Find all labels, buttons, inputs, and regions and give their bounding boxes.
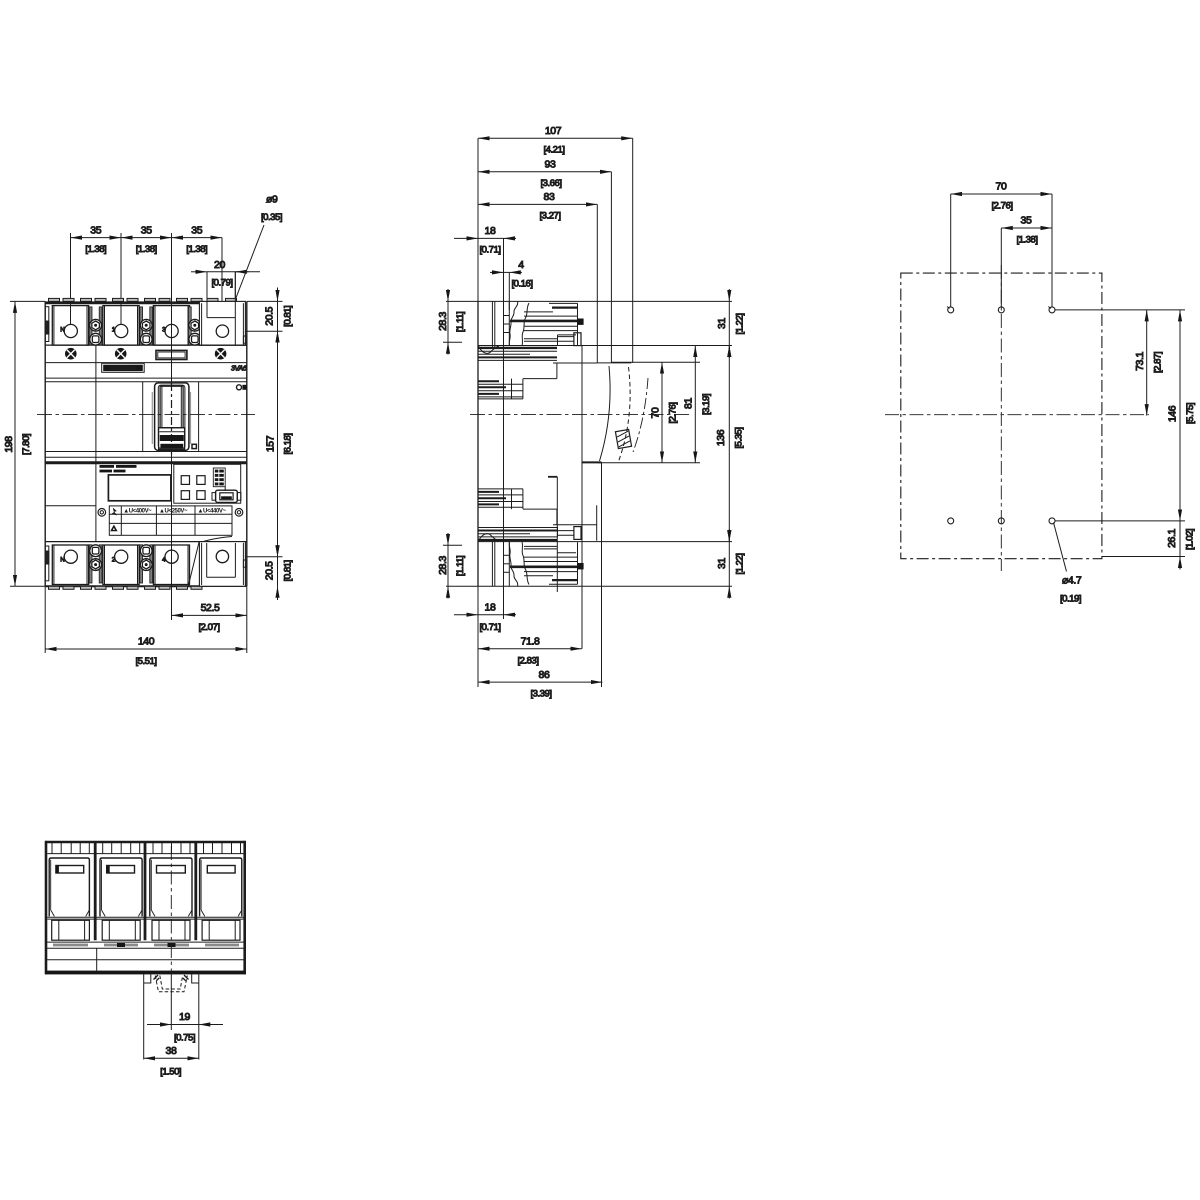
svg-text:38: 38 xyxy=(166,1045,177,1057)
svg-text:[1.11]: [1.11] xyxy=(455,312,466,332)
svg-text:70: 70 xyxy=(996,181,1007,193)
svg-text:⌀4.7: ⌀4.7 xyxy=(1062,575,1082,587)
svg-text:[5.75]: [5.75] xyxy=(1185,403,1196,424)
svg-text:31: 31 xyxy=(716,558,728,569)
svg-text:35: 35 xyxy=(90,225,101,237)
svg-text:[1.38]: [1.38] xyxy=(85,244,106,255)
svg-text:▲U<440V~: ▲U<440V~ xyxy=(198,509,227,515)
svg-text:[3.19]: [3.19] xyxy=(701,394,712,415)
svg-text:157: 157 xyxy=(264,435,276,452)
svg-text:[5.51]: [5.51] xyxy=(135,656,156,667)
svg-text:[2.07]: [2.07] xyxy=(198,622,219,633)
svg-text:107: 107 xyxy=(545,125,562,137)
svg-text:93: 93 xyxy=(545,159,556,171)
svg-text:[3.39]: [3.39] xyxy=(530,689,551,700)
svg-text:[7.80]: [7.80] xyxy=(21,434,32,455)
svg-text:71.8: 71.8 xyxy=(521,635,540,647)
svg-text:▲U<250V~: ▲U<250V~ xyxy=(159,509,188,515)
svg-text:[2.76]: [2.76] xyxy=(991,200,1012,211)
svg-text:35: 35 xyxy=(191,225,202,237)
svg-text:81: 81 xyxy=(682,398,694,409)
svg-text:[1.22]: [1.22] xyxy=(735,553,746,574)
svg-text:▲U<400V~: ▲U<400V~ xyxy=(123,509,152,515)
svg-text:[0.81]: [0.81] xyxy=(283,306,294,327)
svg-text:18: 18 xyxy=(485,601,496,613)
svg-text:[4.21]: [4.21] xyxy=(543,144,564,155)
svg-text:28.3: 28.3 xyxy=(437,312,449,331)
svg-text:[2.76]: [2.76] xyxy=(668,402,679,423)
svg-text:20.5: 20.5 xyxy=(263,306,275,325)
svg-text:[1.38]: [1.38] xyxy=(1016,234,1037,245)
svg-text:[5.35]: [5.35] xyxy=(734,427,745,448)
svg-text:[3.66]: [3.66] xyxy=(540,178,561,189)
svg-text:140: 140 xyxy=(138,636,155,648)
svg-text:73.1: 73.1 xyxy=(1134,352,1146,371)
svg-text:52.5: 52.5 xyxy=(201,602,220,614)
svg-text:[0.81]: [0.81] xyxy=(283,560,294,581)
svg-text:SIEMENS: SIEMENS xyxy=(110,366,136,372)
svg-text:[0.19]: [0.19] xyxy=(1060,594,1081,605)
svg-text:[1.38]: [1.38] xyxy=(186,244,207,255)
svg-text:[1.22]: [1.22] xyxy=(735,313,746,334)
svg-text:26.1: 26.1 xyxy=(1166,529,1178,548)
svg-text:136: 136 xyxy=(715,429,727,446)
svg-text:[1.50]: [1.50] xyxy=(160,1066,181,1077)
svg-text:[0.16]: [0.16] xyxy=(511,279,532,290)
svg-text:[0.79]: [0.79] xyxy=(211,278,232,289)
svg-text:[1.38]: [1.38] xyxy=(136,244,157,255)
svg-text:70: 70 xyxy=(649,407,661,418)
svg-text:3VA6: 3VA6 xyxy=(231,365,247,372)
svg-text:28.3: 28.3 xyxy=(437,556,449,575)
svg-text:35: 35 xyxy=(1021,215,1032,227)
svg-text:[6.18]: [6.18] xyxy=(283,433,294,454)
svg-text:[1.02]: [1.02] xyxy=(1185,529,1196,550)
svg-text:[0.71]: [0.71] xyxy=(479,622,500,633)
svg-text:198: 198 xyxy=(3,436,15,453)
svg-text:86: 86 xyxy=(539,669,550,681)
svg-text:83: 83 xyxy=(544,191,555,203)
svg-text:146: 146 xyxy=(1167,405,1179,422)
svg-text:[0.75]: [0.75] xyxy=(174,1033,195,1044)
svg-text:[2.83]: [2.83] xyxy=(517,655,538,666)
svg-text:4: 4 xyxy=(518,259,524,271)
svg-text:ø9: ø9 xyxy=(266,194,278,206)
svg-text:[0.71]: [0.71] xyxy=(479,245,500,256)
svg-text:35: 35 xyxy=(141,225,152,237)
svg-text:19: 19 xyxy=(179,1011,190,1023)
svg-text:[1.11]: [1.11] xyxy=(455,556,466,576)
svg-text:[3.27]: [3.27] xyxy=(539,211,560,222)
svg-text:20: 20 xyxy=(214,259,225,271)
svg-text:[0.35]: [0.35] xyxy=(261,212,282,223)
svg-text:[2.87]: [2.87] xyxy=(1152,352,1163,373)
svg-text:31: 31 xyxy=(716,318,728,329)
svg-text:20.5: 20.5 xyxy=(263,561,275,580)
svg-text:18: 18 xyxy=(485,225,496,237)
